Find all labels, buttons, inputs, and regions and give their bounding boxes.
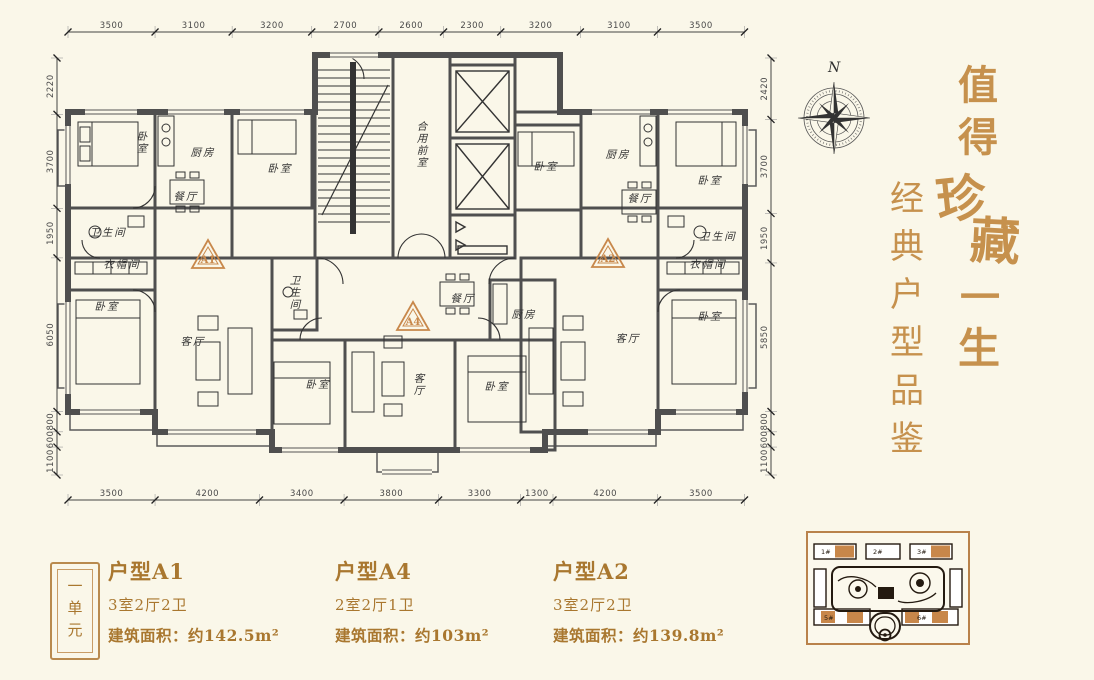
floor-plan: 3500310032002700260023003200310035003500…: [0, 0, 790, 530]
site-building-label: 1#: [821, 548, 831, 556]
slogan-sub-vertical: 经典户型品鉴: [872, 182, 942, 470]
room-label-a4-living: 客厅: [414, 373, 427, 397]
dimension-label: 1100: [46, 449, 56, 473]
dimension-label: 2300: [460, 21, 484, 31]
unit-a2-rooms: 3室2厅2卫: [553, 594, 773, 615]
dimension-label: 1100: [760, 449, 770, 473]
room-label-a2-cloak: 衣帽间: [689, 259, 727, 271]
balconies: [58, 130, 756, 472]
furniture: [75, 116, 739, 424]
room-label-a1-bedroom-2: 卧室: [268, 163, 293, 175]
slogan-main-char: 生: [958, 328, 1068, 370]
room-label-a4-bath: 卫生间: [290, 275, 303, 311]
windows: [65, 52, 749, 476]
dimension-label: 3500: [100, 489, 124, 499]
room-label-a2-bath: 卫生间: [699, 231, 737, 243]
dimension-label: 3100: [607, 21, 631, 31]
dimension-label: 4200: [593, 489, 617, 499]
dimension-label: 800: [46, 413, 56, 431]
slogan-main-char: 值: [958, 66, 1068, 106]
page: { "colors": { "background": "#faf7e9", "…: [0, 0, 1094, 680]
slogan-sub-char: 鉴: [872, 422, 942, 456]
dimension-label: 1300: [525, 489, 549, 499]
unit-number-box-inner: 一单元: [57, 569, 93, 653]
unit-a4-area: 建筑面积：约103m²: [335, 624, 555, 646]
dimension-label: 2220: [46, 74, 56, 98]
site-building-label: 2#: [873, 548, 883, 556]
dimension-label: 3200: [529, 21, 553, 31]
dimension-label: 3800: [380, 489, 404, 499]
slogan-main-char: 得: [958, 118, 1068, 158]
room-label-a1-bath: 卫生间: [89, 227, 127, 239]
floor-plan-drawing: 3500310032002700260023003200310035003500…: [0, 0, 790, 530]
dimension-label: 800: [760, 413, 770, 431]
dimension-label: 5850: [760, 325, 770, 349]
dimension-label: 3500: [689, 489, 713, 499]
dimension-label: 1950: [46, 221, 56, 245]
dimension-label: 4200: [195, 489, 219, 499]
unit-a1-area: 建筑面积：约142.5m²: [108, 624, 328, 646]
room-label-a4-kitchen: 厨房: [512, 309, 537, 321]
room-label-a2-dining: 餐厅: [628, 193, 653, 205]
badge-label-a1: A1: [200, 255, 216, 266]
dimension-label: 2420: [760, 77, 770, 101]
slogan-main-char: 一: [960, 278, 1068, 318]
room-label-a2-bedroom-2: 卧室: [698, 175, 723, 187]
room-label-core-lobby: 合用前室: [417, 121, 430, 169]
dimension-label: 2600: [399, 21, 423, 31]
unit-a2-name: 户型A2: [553, 556, 773, 586]
site-building-label: 5#: [824, 614, 834, 622]
unit-a4-name: 户型A4: [335, 556, 555, 586]
room-label-a1-cloak: 衣帽间: [103, 259, 141, 271]
room-label-a2-bedroom-1: 卧室: [534, 161, 559, 173]
badge-label-a2: A2: [600, 254, 616, 265]
elevators: [456, 71, 509, 254]
dimension-label: 3500: [100, 21, 124, 31]
dimension-label: 3300: [468, 489, 492, 499]
room-label-a2-living: 客厅: [616, 333, 641, 345]
dimension-label: 1950: [760, 226, 770, 250]
slogan-sub-char: 典: [872, 230, 942, 264]
unit-number-label: 一单元: [65, 578, 86, 644]
room-label-a1-bedroom-3: 卧室: [95, 301, 120, 313]
unit-card-a4: 户型A4 2室2厅1卫 建筑面积：约103m²: [335, 556, 555, 646]
dimension-label: 3500: [689, 21, 713, 31]
dimension-label: 6050: [46, 323, 56, 347]
slogan-sub-char: 品: [872, 374, 942, 408]
unit-number-box: 一单元: [50, 562, 100, 660]
compass-north-label: N: [827, 60, 841, 76]
slogan-main-vertical: 值得珍藏一生: [948, 66, 1068, 370]
site-building-label: 6#: [917, 614, 927, 622]
unit-a1-name: 户型A1: [108, 556, 328, 586]
unit-a2-area: 建筑面积：约139.8m²: [553, 624, 773, 646]
dimension-label: 2700: [333, 21, 357, 31]
badge-label-a4: A4: [405, 317, 421, 328]
room-label-a4-bedroom-1: 卧室: [306, 379, 331, 391]
room-label-a4-dining: 餐厅: [451, 293, 476, 305]
unit-card-a2: 户型A2 3室2厅2卫 建筑面积：约139.8m²: [553, 556, 773, 646]
room-label-a1-kitchen: 厨房: [191, 147, 216, 159]
unit-card-a1: 户型A1 3室2厅2卫 建筑面积：约142.5m²: [108, 556, 328, 646]
dimension-label: 3700: [46, 150, 56, 174]
dimension-label: 600: [760, 431, 770, 449]
room-label-a2-bedroom-3: 卧室: [698, 311, 723, 323]
room-label-a1-bedroom-1: 卧室: [137, 131, 150, 155]
slogan-sub-char: 户: [872, 278, 942, 312]
site-plan-map: 1#2#3#5#6#: [806, 531, 970, 645]
room-label-a2-kitchen: 厨房: [606, 149, 631, 161]
dimension-label: 3400: [290, 489, 314, 499]
dimension-label: 3200: [260, 21, 284, 31]
dimension-label: 3700: [760, 155, 770, 179]
slogan-sub-char: 经: [872, 182, 942, 216]
room-label-a1-living: 客厅: [181, 336, 206, 348]
room-label-a1-dining: 餐厅: [174, 191, 199, 203]
slogan-main-char: 藏: [969, 215, 1069, 270]
unit-a4-rooms: 2室2厅1卫: [335, 594, 555, 615]
compass-rose-icon: N: [790, 56, 878, 162]
unit-badges: A1A4A2: [192, 239, 624, 330]
slogan-sub-char: 型: [872, 326, 942, 360]
site-building-label: 3#: [917, 548, 927, 556]
staircase: [318, 62, 390, 234]
dimension-label: 600: [46, 431, 56, 449]
room-label-a4-bedroom-2: 卧室: [485, 381, 510, 393]
compass-star: [798, 82, 870, 154]
dimension-label: 3100: [182, 21, 206, 31]
unit-a1-rooms: 3室2厅2卫: [108, 594, 328, 615]
